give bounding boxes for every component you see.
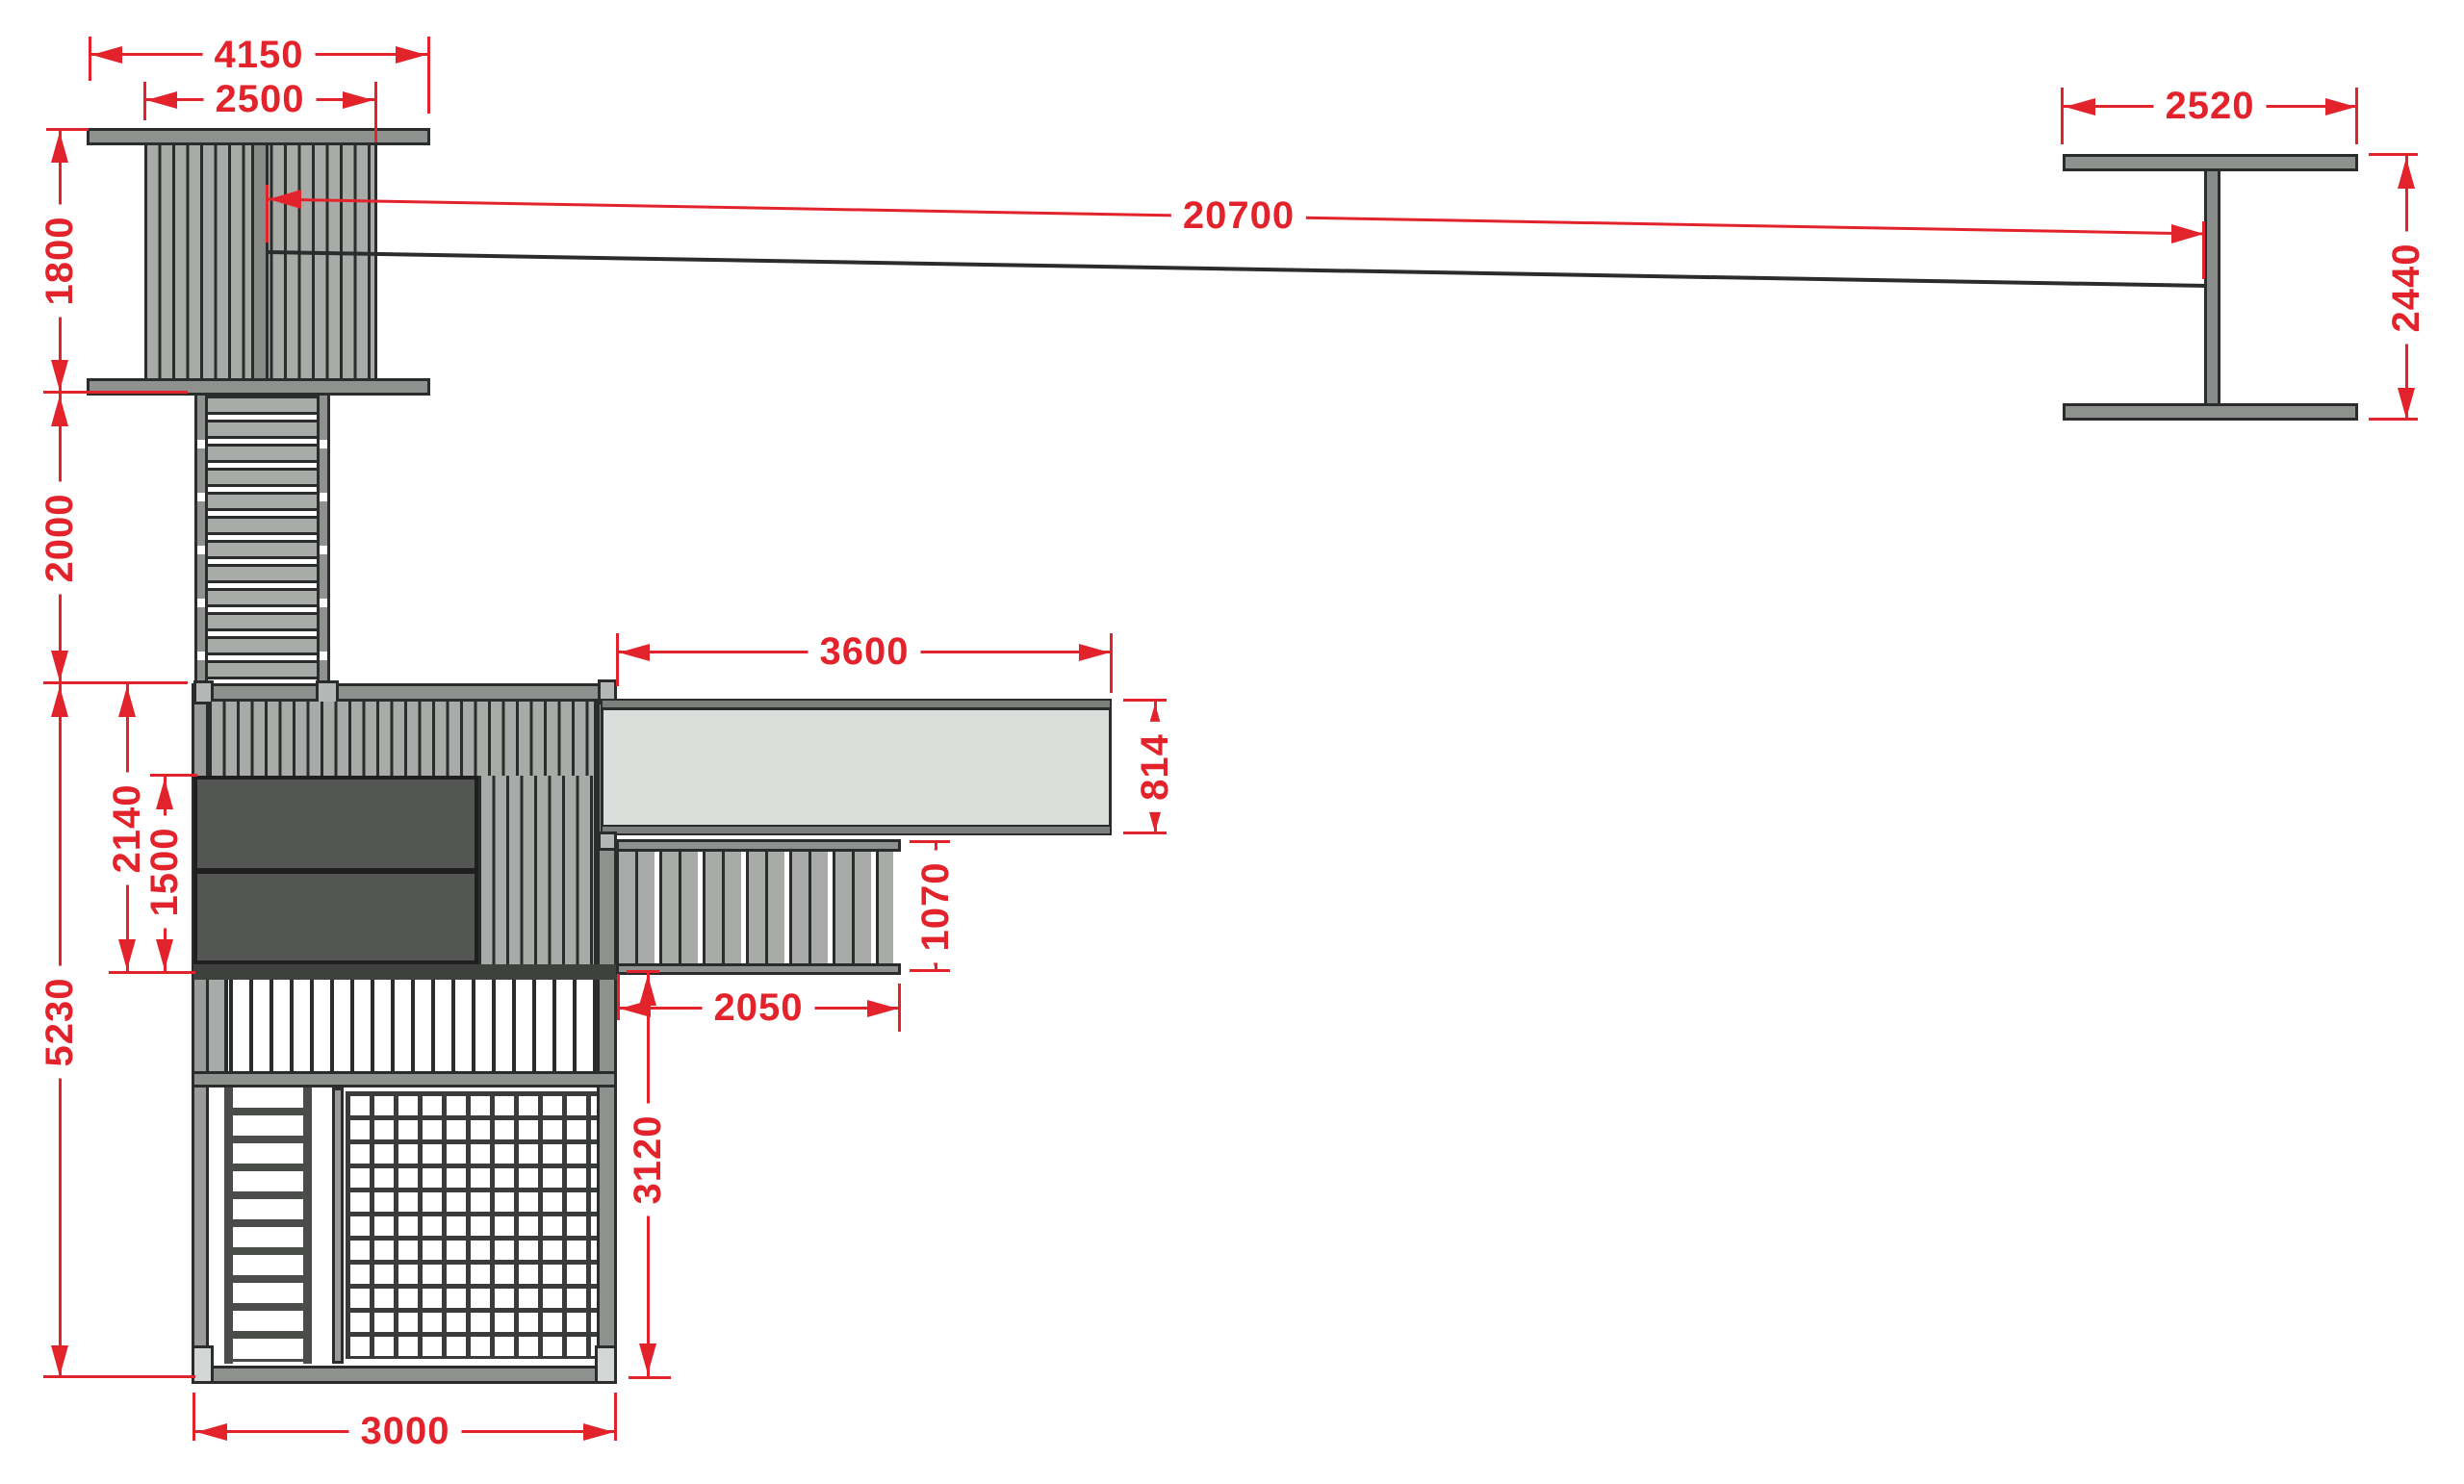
- stairs-top-rail: [616, 839, 901, 852]
- extension-line: [629, 1376, 671, 1379]
- extension-line: [2369, 153, 2418, 156]
- end-support-top-bar: [2063, 154, 2358, 171]
- slide-bottom-rail: [601, 825, 1112, 835]
- arrow-head: [619, 644, 650, 661]
- dimension-label: 2140: [106, 773, 148, 885]
- dimension-label: 2500: [204, 78, 317, 120]
- platform-divider-bar: [193, 964, 617, 980]
- platform-roof-slats: [209, 702, 597, 776]
- dimension-label: 3000: [349, 1410, 462, 1452]
- extension-line: [614, 1393, 617, 1441]
- platform-corner-se: [595, 1345, 617, 1384]
- arrow-head: [196, 1423, 227, 1441]
- extension-line: [143, 82, 146, 120]
- stairs-bottom-rail: [616, 963, 901, 975]
- slide-lower-connector: [598, 832, 617, 851]
- arrow-head: [118, 686, 136, 717]
- arrow-head: [2398, 158, 2415, 189]
- arrow-head: [51, 396, 68, 426]
- platform-side-slats: [478, 776, 597, 964]
- extension-line: [1110, 633, 1113, 693]
- arrow-head: [396, 46, 426, 64]
- extension-line: [2369, 418, 2418, 421]
- arrow-head: [343, 91, 373, 109]
- bridge-left-rail: [194, 396, 208, 684]
- cable-dim-arrow-right: [2171, 224, 2204, 243]
- end-support-bottom-bar: [2063, 403, 2358, 421]
- extension-line: [266, 185, 269, 243]
- arrow-head: [2325, 98, 2356, 115]
- arrow-head: [639, 975, 656, 1006]
- arrow-head: [156, 779, 173, 809]
- dark-roof-panel-lower: [193, 870, 478, 964]
- zipline-cable: [268, 252, 2207, 286]
- ladder-left-rail: [224, 1087, 233, 1364]
- net-frame-bar: [332, 1087, 344, 1364]
- ladder-rungs: [233, 1087, 303, 1362]
- arrow-head: [2065, 98, 2095, 115]
- dimension-label: 3600: [808, 630, 921, 673]
- arrow-head: [146, 91, 177, 109]
- arrow-head: [639, 1343, 656, 1374]
- dimension-label: 4150: [203, 34, 316, 76]
- platform-mid-bar: [192, 1071, 617, 1087]
- extension-line: [616, 633, 619, 686]
- arrow-head: [1079, 644, 1110, 661]
- extension-line: [374, 82, 377, 142]
- dark-roof-panel-upper: [193, 776, 478, 872]
- extension-line: [427, 37, 430, 114]
- fence-first-slat: [209, 980, 228, 1071]
- dimension-label: 2050: [703, 986, 815, 1029]
- end-support-post: [2204, 171, 2220, 403]
- arrow-head: [867, 1000, 898, 1017]
- dimension-label: 814: [1134, 722, 1176, 812]
- extension-line: [150, 774, 197, 777]
- arrow-head: [583, 1423, 614, 1441]
- tower-roof-ridge: [251, 145, 269, 378]
- slide-surface: [601, 707, 1112, 828]
- dimension-label: 5230: [38, 966, 81, 1079]
- extension-line: [910, 969, 950, 972]
- extension-line: [2202, 221, 2205, 279]
- dimension-label: 1500: [143, 816, 186, 929]
- extension-line: [109, 971, 195, 974]
- extension-line: [627, 970, 659, 973]
- arrow-head: [51, 651, 68, 681]
- drawing-canvas: 4150 2500 1800 2000: [0, 0, 2464, 1484]
- platform-top-edge: [192, 683, 617, 702]
- extension-line: [898, 984, 901, 1032]
- arrow-head: [91, 46, 122, 64]
- dimension-label: 2440: [2385, 232, 2427, 345]
- extension-line: [2061, 88, 2064, 144]
- extension-line: [2355, 88, 2358, 144]
- extension-line: [43, 1375, 195, 1378]
- dimension-label: 1070: [914, 851, 957, 963]
- bridge-right-rail: [317, 396, 330, 684]
- dimension-label: 1800: [38, 205, 81, 318]
- extension-line: [617, 974, 620, 1020]
- extension-line: [192, 1393, 195, 1441]
- arrow-head: [51, 686, 68, 717]
- tower-top-edge: [87, 128, 430, 145]
- dimension-label: 3120: [627, 1104, 669, 1216]
- arrow-head: [51, 360, 68, 391]
- dimension-label: 2000: [38, 482, 81, 595]
- arrow-head: [51, 1345, 68, 1376]
- platform-bottom-edge: [192, 1366, 617, 1384]
- arrow-head: [156, 939, 173, 970]
- fence-slats: [209, 980, 597, 1071]
- extension-line: [46, 128, 89, 131]
- extension-line: [43, 391, 188, 394]
- extension-line: [43, 681, 188, 684]
- extension-line: [89, 37, 91, 81]
- arrow-head: [2398, 388, 2415, 419]
- dimension-label: 20700: [1171, 194, 1306, 237]
- ladder-right-rail: [303, 1087, 312, 1364]
- stairs-treads: [616, 852, 893, 963]
- arrow-head: [118, 939, 136, 970]
- platform-corner-sw: [192, 1345, 214, 1384]
- climbing-net: [346, 1091, 597, 1359]
- extension-line: [1123, 699, 1167, 702]
- extension-line: [910, 840, 950, 843]
- extension-line: [1123, 832, 1167, 834]
- arrow-head: [51, 132, 68, 163]
- bridge-deck: [208, 396, 317, 684]
- dimension-label: 2520: [2154, 85, 2267, 127]
